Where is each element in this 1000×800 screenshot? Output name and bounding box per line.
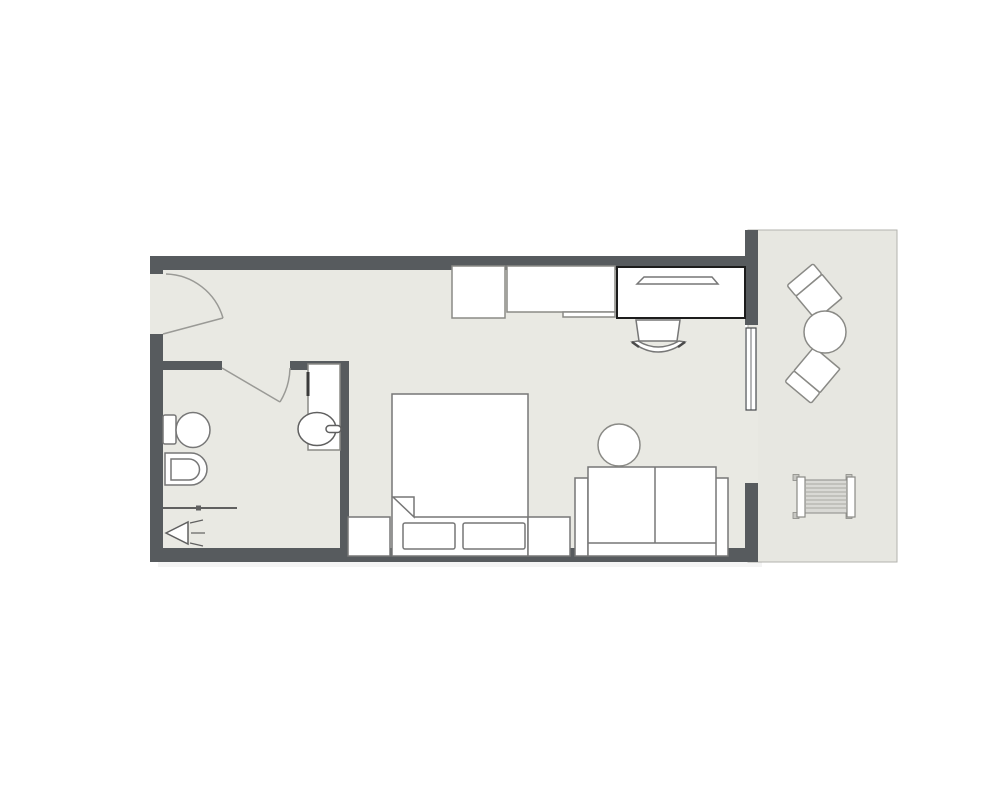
shower-screen-joint xyxy=(196,506,201,511)
balcony-opening xyxy=(745,410,758,483)
bidet xyxy=(165,453,207,485)
wall-left-lower xyxy=(150,334,163,562)
desk-chair-seat xyxy=(636,320,680,341)
wall-right-upper xyxy=(745,230,758,325)
sofa-armrest-left xyxy=(575,478,588,556)
bathroom-wall-left-segment xyxy=(163,361,222,370)
round-side-table xyxy=(598,424,640,466)
vanity-splash-bar xyxy=(307,372,310,396)
entry-threshold xyxy=(150,274,163,334)
pillow-left xyxy=(403,523,455,549)
floor-plan-canvas xyxy=(0,0,1000,800)
toilet xyxy=(163,413,210,448)
double-bed xyxy=(392,394,528,556)
wall-left-upper xyxy=(150,256,163,274)
sofa xyxy=(575,467,728,556)
pillow-right xyxy=(463,523,525,549)
balcony-zone xyxy=(748,230,897,562)
desk-chair xyxy=(632,320,685,352)
ac-unit xyxy=(793,475,855,519)
bidet-basin xyxy=(171,459,200,480)
cabinet xyxy=(452,266,505,318)
floor-plan-page xyxy=(0,0,1000,800)
toilet-bowl xyxy=(176,413,210,448)
tv-console xyxy=(507,266,615,312)
sliding-window xyxy=(746,328,756,410)
tv xyxy=(637,277,718,284)
balcony-round-table xyxy=(804,311,846,353)
toilet-tank xyxy=(163,415,176,444)
nightstand-right xyxy=(528,517,570,556)
wall-right-lower xyxy=(745,483,758,562)
desk xyxy=(617,267,745,318)
wall-shadow xyxy=(158,562,762,567)
nightstand-left xyxy=(348,517,390,556)
ac-rail-left xyxy=(797,477,805,517)
tv-console-lip xyxy=(563,312,615,317)
ac-rail-right xyxy=(847,477,855,517)
sink-tap xyxy=(326,426,341,433)
ac-vent-slats xyxy=(806,484,846,508)
sofa-armrest-right xyxy=(715,478,728,556)
